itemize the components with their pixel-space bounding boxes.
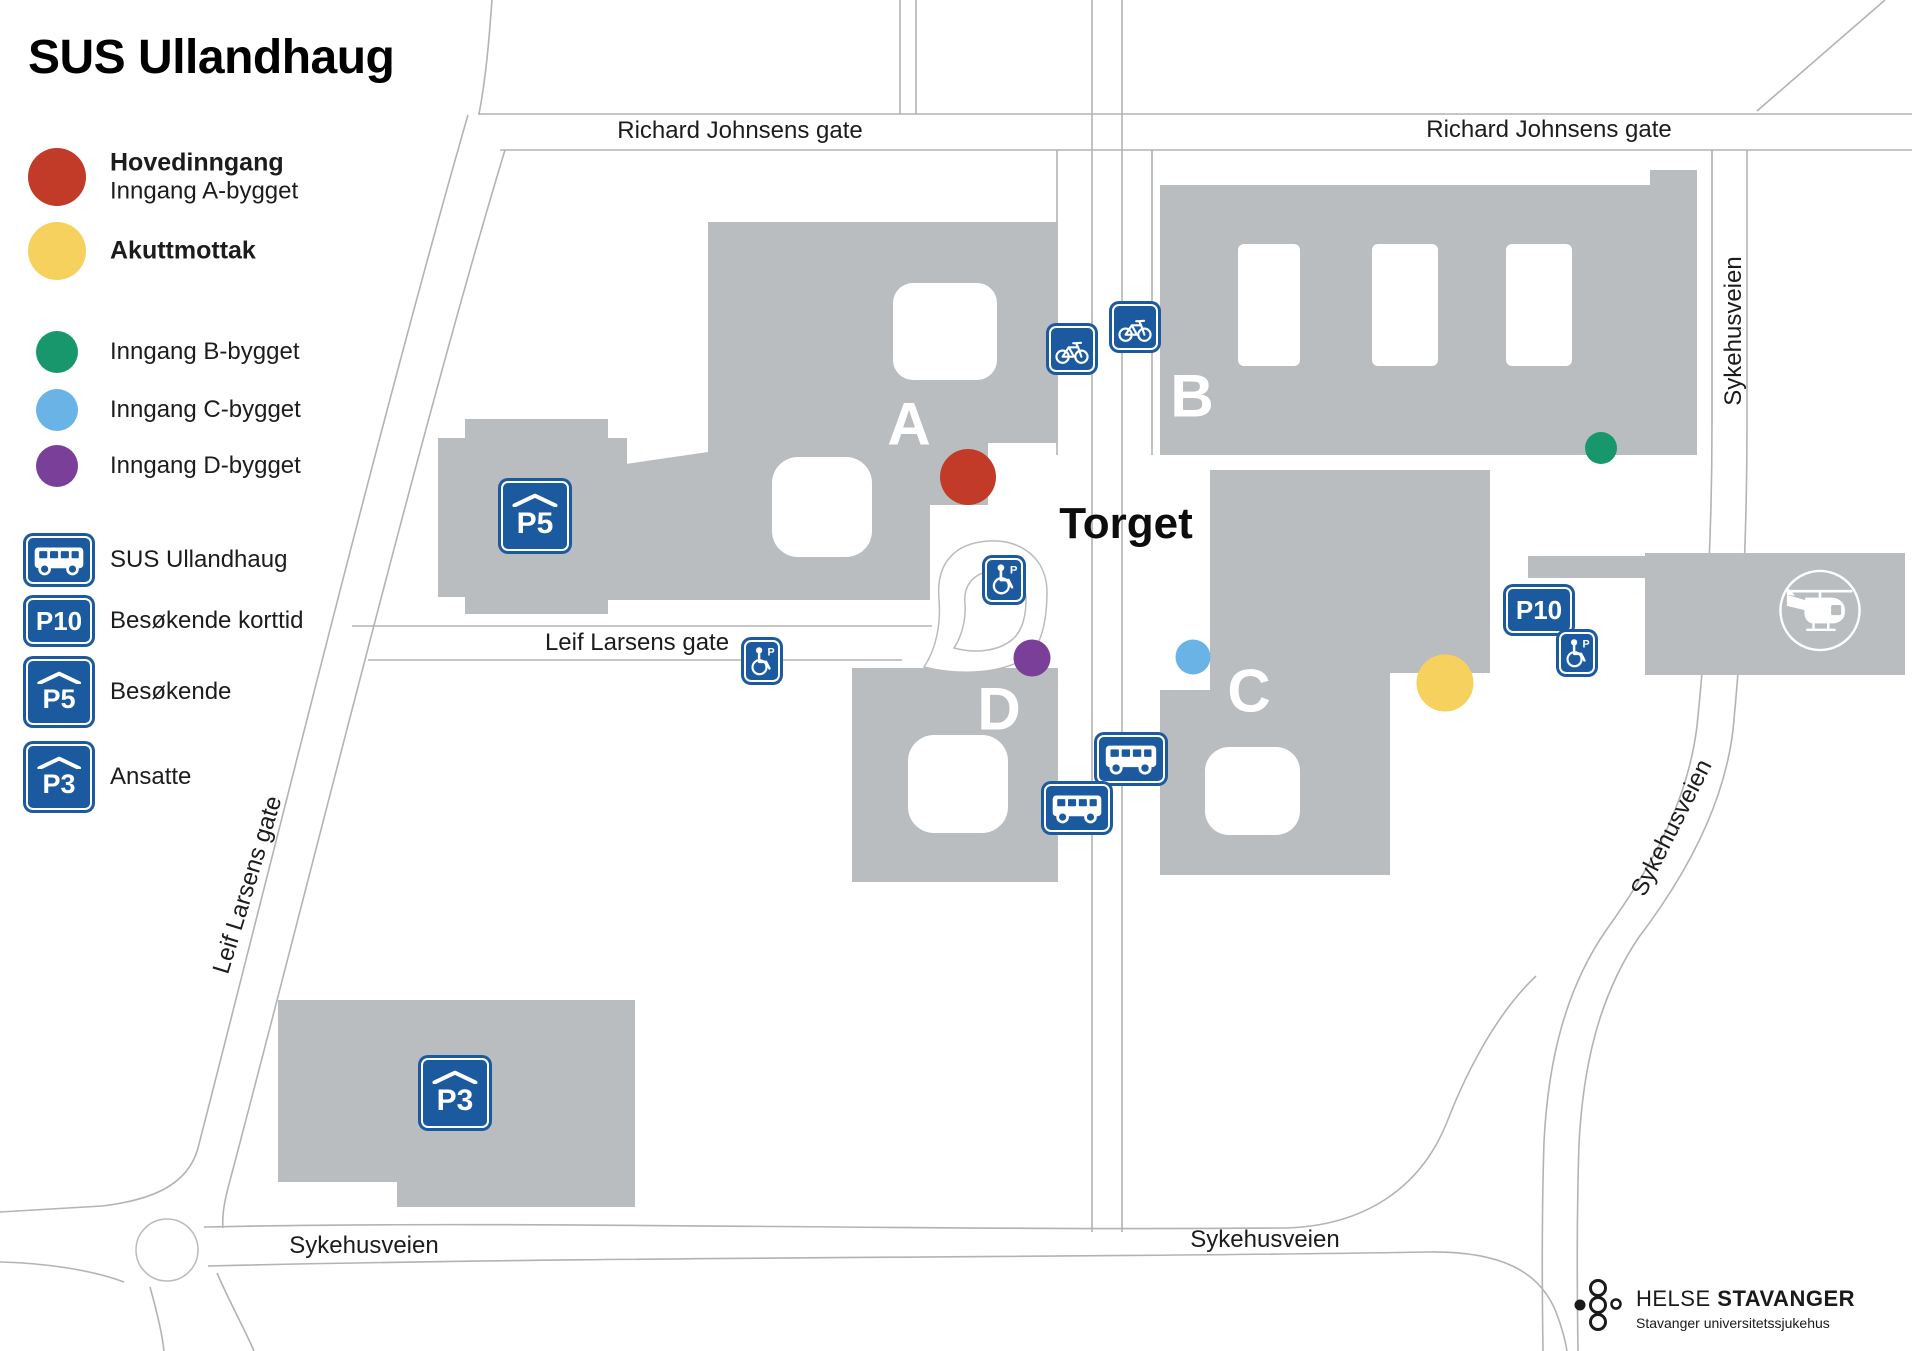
parking-roof-icon <box>35 756 83 770</box>
legend-item-hovedinngang: Hovedinngang Inngang A-bygget <box>110 149 298 206</box>
page-title: SUS Ullandhaug <box>28 30 394 85</box>
bus-icon <box>1103 741 1159 776</box>
building-label-b: B <box>1170 362 1213 431</box>
legend-dot-inngang-d <box>36 445 78 487</box>
map-marker-akuttmottak <box>1417 655 1474 712</box>
map-accessible-parking-sign: P <box>985 558 1023 602</box>
legend-p10-sign: P10 <box>26 598 92 644</box>
street-label-richard-johnsens-gate: Richard Johnsens gate <box>1426 116 1671 144</box>
logo-name-regular: HELSE <box>1636 1286 1711 1311</box>
courtyard <box>1205 747 1300 835</box>
legend-p3-sign: P3 <box>26 744 92 810</box>
map-p5-text: P5 <box>517 509 554 539</box>
legend-label-inngang-d: Inngang D-bygget <box>110 452 301 480</box>
map-bus-stop-sign <box>1097 735 1165 783</box>
map-p10-sign: P10 <box>1506 587 1572 633</box>
parking-roof-icon <box>35 671 83 685</box>
road-south-stub <box>217 1273 254 1351</box>
bicycle-icon <box>1054 333 1090 366</box>
legend-label-p10: Besøkende korttid <box>110 607 303 635</box>
legend-dot-hovedinngang <box>28 148 86 206</box>
map-accessible-parking-sign: P <box>1559 632 1595 674</box>
map-p3-sign: P3 <box>421 1058 489 1128</box>
torget-label: Torget <box>1059 499 1193 549</box>
heliport-marker <box>1774 565 1866 662</box>
legend-dot-inngang-b <box>36 331 78 373</box>
legend-bus-stop-sign <box>26 536 92 584</box>
bus-icon <box>1050 791 1104 825</box>
building-label-d: D <box>977 675 1020 744</box>
legend-label-bus: SUS Ullandhaug <box>110 546 287 574</box>
road-sykehusveien-bottom <box>208 1252 1567 1351</box>
street-label-leif-larsens-gate: Leif Larsens gate <box>545 629 729 657</box>
legend-p5-text: P5 <box>42 686 75 713</box>
legend-label-inngang-b: Inngang B-bygget <box>110 338 299 366</box>
logo-text: HELSE STAVANGER Stavanger universitetssj… <box>1636 1278 1855 1331</box>
map-p3-text: P3 <box>437 1086 474 1116</box>
courtyard <box>1506 244 1572 366</box>
campus-map: SUS Ullandhaug Hovedinngang Inngang A-by… <box>0 0 1912 1351</box>
helse-stavanger-logo: HELSE STAVANGER Stavanger universitetssj… <box>1572 1278 1855 1332</box>
map-marker-inngang-d <box>1014 640 1051 677</box>
road-top-right-diagonal <box>1757 0 1885 111</box>
road-west-stub <box>0 1262 124 1282</box>
legend-label-akuttmottak: Akuttmottak <box>110 237 256 266</box>
heliport-connector <box>1528 556 1680 578</box>
wheelchair-icon: P <box>748 645 776 678</box>
map-bus-stop-sign <box>1044 784 1110 832</box>
helicopter-icon <box>1774 565 1866 657</box>
road-top-left-curve <box>479 0 492 114</box>
wheelchair-p-letter: P <box>1010 565 1018 577</box>
legend-dot-akuttmottak <box>28 222 86 280</box>
wheelchair-icon: P <box>1563 637 1591 670</box>
map-marker-inngang-c <box>1176 640 1211 675</box>
courtyard <box>1372 244 1438 366</box>
street-label-sykehusveien-south: Sykehusveien <box>289 1232 438 1260</box>
wheelchair-icon: P <box>989 562 1019 597</box>
legend-label-inngang-c: Inngang C-bygget <box>110 396 301 424</box>
legend-sublabel-inngang-a: Inngang A-bygget <box>110 178 298 206</box>
map-accessible-parking-sign: P <box>744 640 780 682</box>
map-p5-sign: P5 <box>501 481 569 551</box>
legend-p3-text: P3 <box>42 771 75 798</box>
courtyard <box>1238 244 1300 366</box>
bicycle-icon <box>1117 311 1153 344</box>
map-bicycle-sign <box>1112 304 1158 350</box>
helse-stavanger-logo-icon <box>1572 1278 1624 1332</box>
wheelchair-p-letter: P <box>1582 638 1589 650</box>
roundabout <box>136 1219 198 1281</box>
logo-name-bold: STAVANGER <box>1717 1286 1855 1311</box>
map-marker-inngang-b <box>1585 432 1617 464</box>
building-label-a: A <box>887 390 930 459</box>
legend-label-p5: Besøkende <box>110 678 231 706</box>
map-bicycle-sign <box>1049 326 1095 372</box>
map-marker-hovedinngang <box>940 449 996 505</box>
legend-label-p3: Ansatte <box>110 763 191 791</box>
logo-name: HELSE STAVANGER <box>1636 1286 1855 1312</box>
street-label-sykehusveien-east: Sykehusveien <box>1720 256 1748 405</box>
building-label-c: C <box>1227 657 1270 726</box>
parking-roof-icon <box>430 1070 480 1084</box>
legend-label-hovedinngang: Hovedinngang <box>110 149 298 178</box>
courtyard <box>908 735 1008 833</box>
legend-p5-sign: P5 <box>26 659 92 725</box>
street-label-sykehusveien-south: Sykehusveien <box>1190 1226 1339 1254</box>
wheelchair-p-letter: P <box>767 646 774 658</box>
bus-icon <box>32 543 86 577</box>
legend-dot-inngang-c <box>36 389 78 431</box>
road-south-stub <box>150 1287 164 1351</box>
parking-roof-icon <box>510 493 560 507</box>
logo-subtitle: Stavanger universitetssjukehus <box>1636 1315 1855 1331</box>
street-label-richard-johnsens-gate: Richard Johnsens gate <box>617 117 862 145</box>
courtyard <box>772 457 872 557</box>
courtyard <box>893 283 997 380</box>
